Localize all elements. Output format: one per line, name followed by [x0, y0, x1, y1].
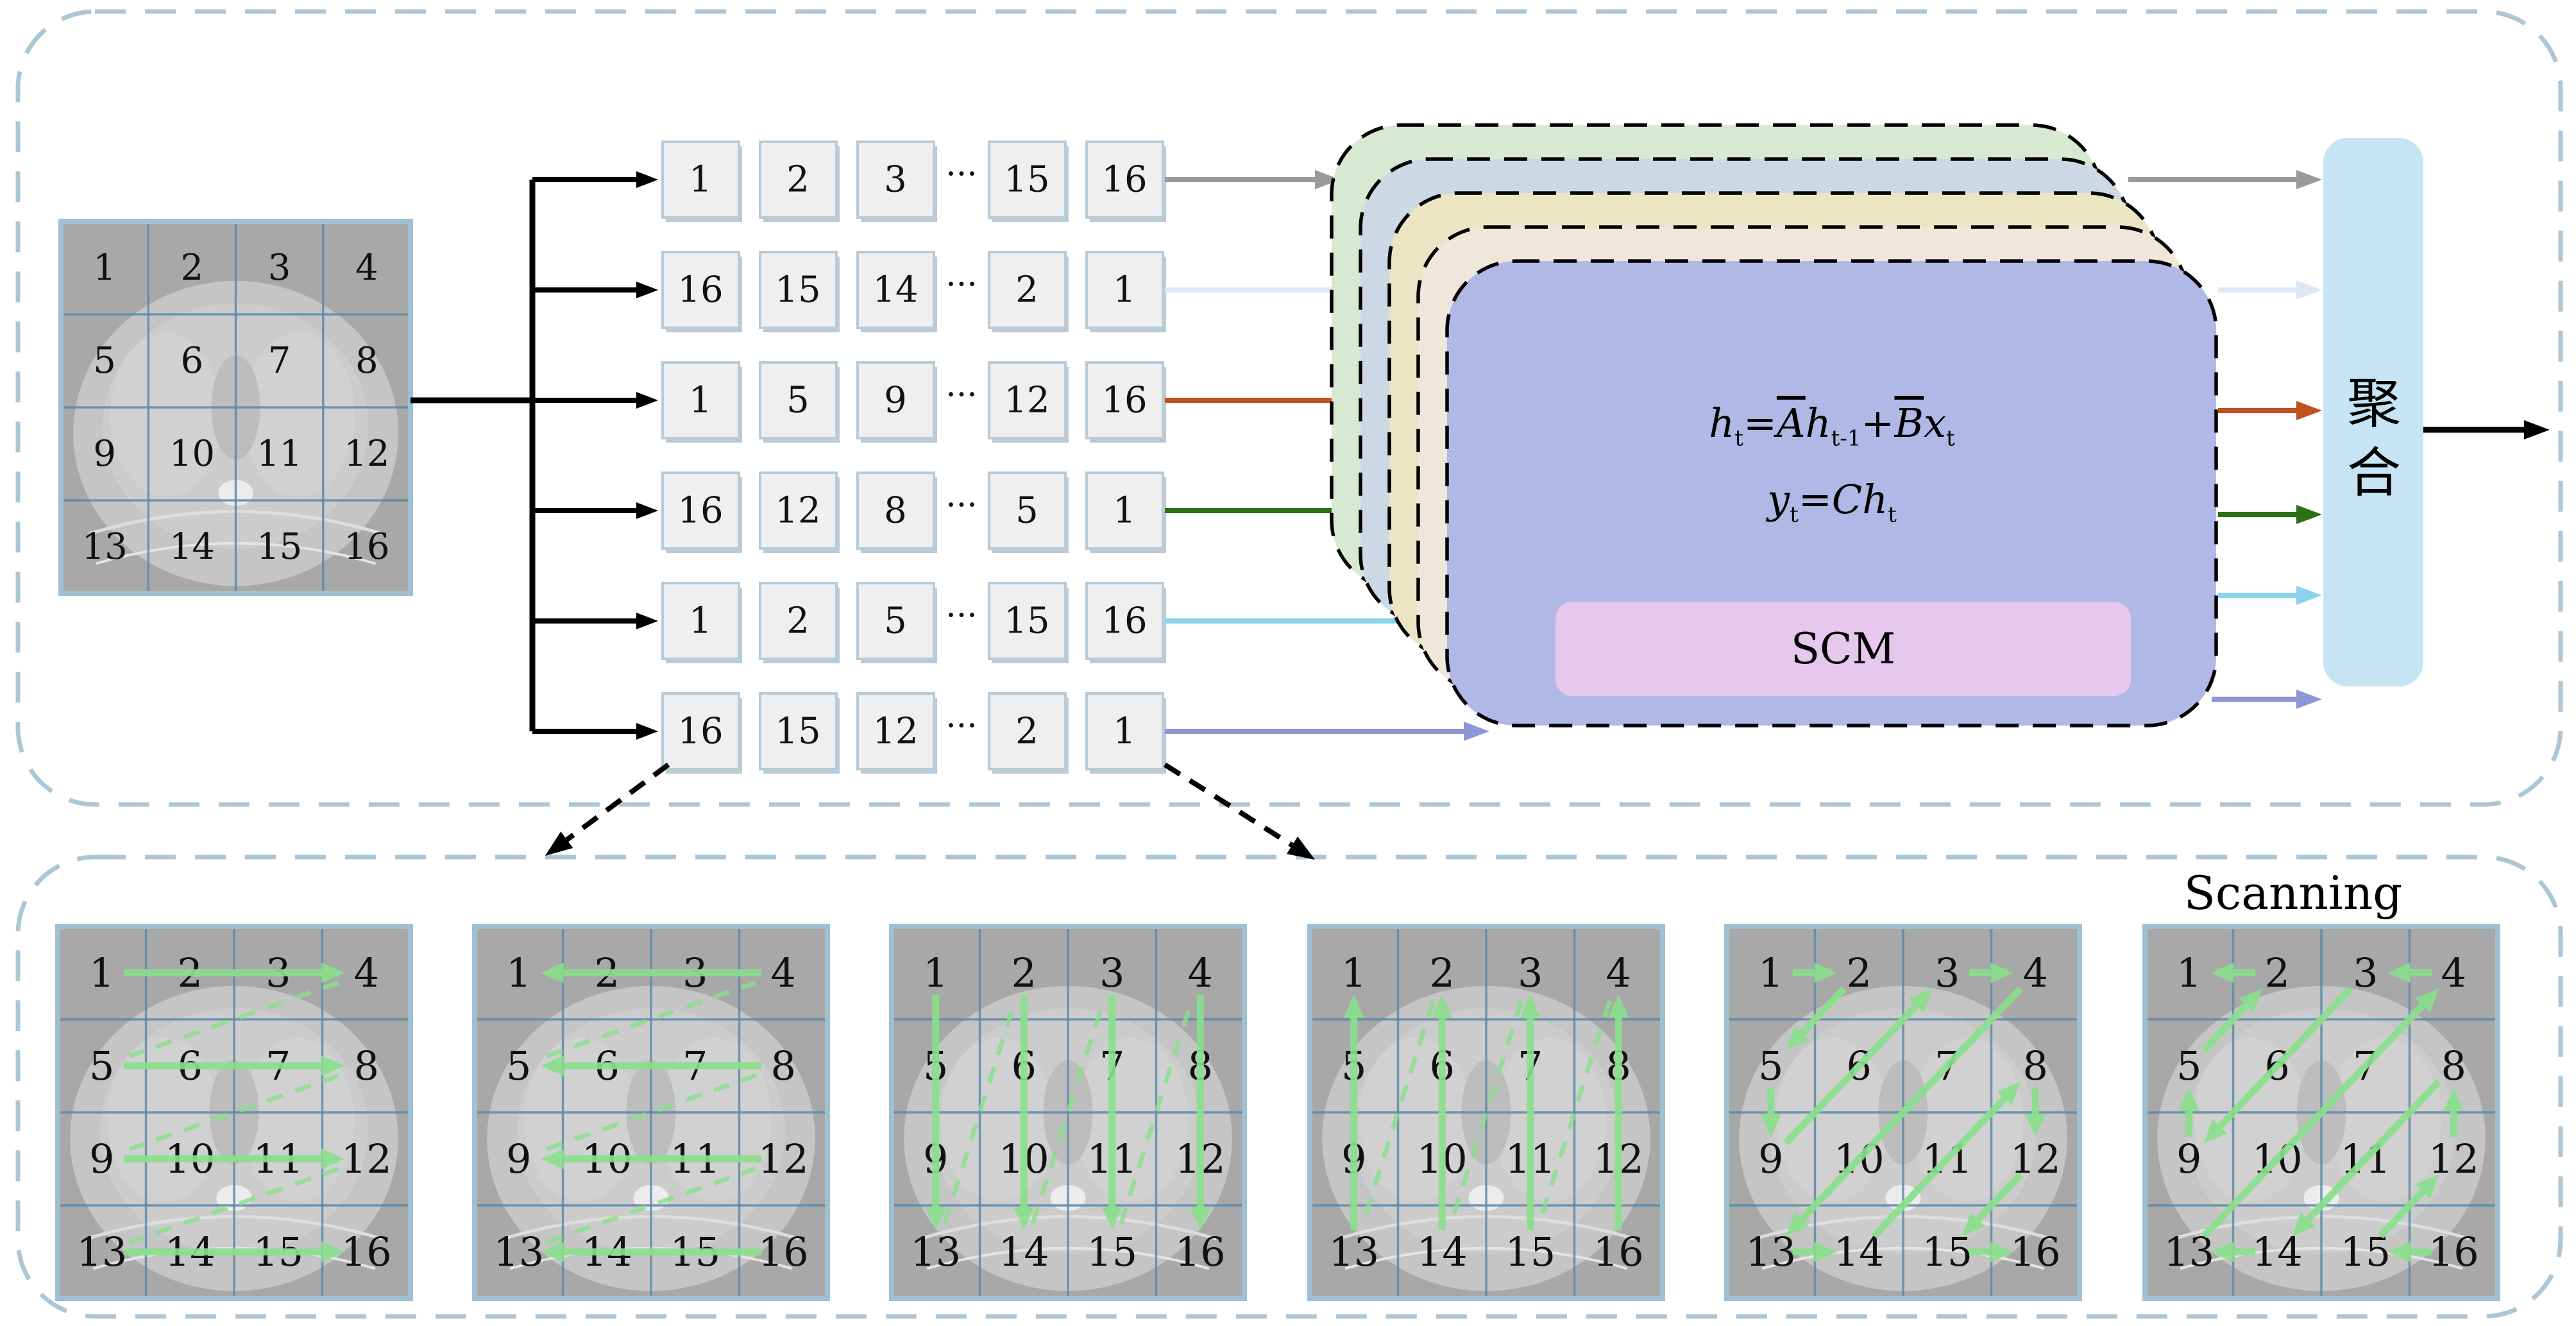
equation-token: C	[1832, 476, 1862, 523]
patch-number: 1	[1758, 949, 1783, 996]
patch-number: 12	[2428, 1135, 2479, 1182]
patch-number: 9	[506, 1135, 531, 1182]
patch-number: 8	[354, 1042, 379, 1089]
patch-number: 13	[76, 1228, 127, 1275]
sequence-cell-number: 15	[1004, 159, 1049, 201]
diagram-canvas: 12345678910111213141516123···1516161514·…	[0, 0, 2576, 1326]
equation-token: +	[1861, 400, 1895, 446]
patch-number: 16	[341, 1228, 392, 1275]
patch-number: 1	[506, 949, 531, 996]
equation-token: h	[1806, 400, 1831, 446]
patch-number: 3	[2353, 949, 2378, 996]
sequence-ellipsis: ···	[945, 266, 978, 304]
patch-number: 9	[93, 433, 116, 475]
patch-number: 16	[2428, 1228, 2479, 1275]
sequence-cell-number: 16	[677, 490, 723, 532]
sequence-cell-number: 16	[1101, 159, 1147, 201]
flow-arrow-out-column-reverse	[2218, 505, 2322, 524]
fanout-arrow-1	[532, 171, 658, 188]
patch-number: 2	[1012, 949, 1037, 996]
fanout-arrow-6	[532, 723, 658, 740]
patch-number: 14	[1417, 1228, 1468, 1275]
patch-number: 3	[1935, 949, 1960, 996]
expand-arrow-left	[545, 765, 668, 856]
equation-token: x	[1924, 400, 1946, 446]
patch-number: 11	[257, 433, 302, 475]
equation-token: =	[1799, 476, 1832, 523]
fanout-arrow-3	[532, 392, 658, 409]
patch-number: 5	[506, 1042, 531, 1089]
patch-number: 9	[1758, 1135, 1783, 1182]
flow-arrow-out-zigzag-forward	[2218, 586, 2322, 605]
sequence-cell-number: 1	[1113, 711, 1136, 752]
aggregation-label: 聚合	[2328, 369, 2419, 507]
patch-number: 10	[169, 433, 215, 475]
equation-token: h	[1709, 400, 1734, 446]
patch-number: 6	[181, 340, 204, 382]
scan-row-forward: 12345678910111213141516	[58, 926, 411, 1298]
equation-token: t	[1734, 425, 1743, 451]
patch-number: 12	[758, 1135, 809, 1182]
patch-number: 1	[89, 949, 114, 996]
patch-number: 4	[1606, 949, 1631, 996]
patch-number: 4	[354, 949, 379, 996]
patch-number: 2	[2265, 949, 2290, 996]
patch-number: 2	[181, 247, 204, 289]
patch-number: 3	[268, 247, 291, 289]
sequence-cell-number: 1	[689, 159, 712, 201]
sequence-cell-number: 15	[1004, 600, 1049, 642]
patch-number: 8	[355, 340, 378, 382]
patch-number: 14	[2252, 1228, 2303, 1275]
sequence-row-row-reverse: 161514···21	[663, 252, 1166, 332]
patch-number: 8	[2023, 1042, 2048, 1089]
sequence-row-zigzag-reverse: 161512···21	[663, 693, 1166, 774]
sequence-cell-number: 1	[1113, 490, 1136, 532]
sequence-cell-number: 15	[775, 269, 820, 311]
equation-token: h	[1862, 476, 1888, 523]
sequence-cell-number: 3	[884, 159, 907, 201]
patch-number: 4	[771, 949, 796, 996]
patch-number: 15	[1505, 1228, 1555, 1275]
sequence-cell-number: 8	[884, 490, 907, 532]
sequence-cell-number: 5	[1015, 490, 1038, 532]
fanout-arrow-4	[532, 502, 658, 519]
sequence-cell-number: 9	[884, 380, 907, 421]
patch-number: 5	[1758, 1042, 1783, 1089]
patch-number: 13	[1328, 1228, 1379, 1275]
patch-number: 9	[89, 1135, 114, 1182]
patch-number: 2	[1847, 949, 1872, 996]
flow-arrow-out-column-forward	[2218, 401, 2322, 420]
sequence-ellipsis: ···	[945, 155, 978, 194]
sequence-ellipsis: ···	[945, 707, 978, 745]
sequence-ellipsis: ···	[945, 376, 978, 414]
ssm-equation-line1: ht=Aht-1+Bxt	[1511, 393, 2153, 469]
patch-number: 13	[910, 1228, 961, 1275]
sequence-cell-number: 5	[786, 380, 809, 421]
expand-arrow-right	[1165, 765, 1315, 860]
sequence-cell-number: 12	[775, 490, 820, 532]
sequence-cell-number: 2	[786, 159, 809, 201]
sequence-cell-number: 2	[1015, 711, 1038, 752]
patch-number: 3	[1518, 949, 1543, 996]
fanout-arrow-2	[532, 282, 658, 298]
scan-column-reverse: 12345678910111213141516	[1310, 926, 1663, 1298]
equation-token: y	[1767, 476, 1790, 523]
equation-token: t	[1946, 425, 1955, 451]
ssm-equation-line2: yt=Cht	[1511, 469, 2153, 545]
patch-number: 4	[2441, 949, 2466, 996]
sequence-cell-number: 12	[1004, 380, 1049, 421]
patch-number: 14	[999, 1228, 1049, 1275]
patch-number: 13	[81, 526, 127, 568]
patch-number: 1	[923, 949, 948, 996]
input-ct-grid: 12345678910111213141516	[61, 221, 411, 593]
equation-token: B	[1894, 400, 1924, 446]
patch-number: 7	[268, 340, 291, 382]
sequence-cell-number: 1	[689, 600, 712, 642]
sequence-row-column-forward: 159···1216	[663, 362, 1166, 443]
sequence-ellipsis: ···	[945, 597, 978, 635]
sequence-cell-number: 16	[677, 269, 723, 311]
scanning-title: Scanning	[2162, 866, 2425, 920]
patch-number: 13	[493, 1228, 544, 1275]
patch-number: 8	[2441, 1042, 2466, 1089]
flow-arrow-in-zigzag-reverse	[1165, 722, 1489, 741]
patch-number: 5	[93, 340, 116, 382]
sequence-cell-number: 16	[677, 711, 723, 752]
equation-token: t	[1790, 502, 1799, 528]
patch-number: 12	[344, 433, 389, 475]
sequence-cell-number: 1	[1113, 269, 1136, 311]
sequence-cell-number: 2	[1015, 269, 1038, 311]
patch-number: 3	[1099, 949, 1124, 996]
patch-number: 15	[1922, 1228, 1972, 1275]
patch-number: 16	[758, 1228, 809, 1275]
patch-number: 5	[89, 1042, 114, 1089]
flow-arrow-out-zigzag-reverse	[2212, 690, 2322, 709]
patch-number: 8	[771, 1042, 796, 1089]
patch-number: 14	[169, 526, 215, 568]
patch-number: 12	[341, 1135, 392, 1182]
flow-arrow-in-row-forward	[1165, 170, 1341, 189]
flow-arrow-out-row-reverse	[2218, 280, 2322, 300]
patch-number: 9	[2176, 1135, 2201, 1182]
sequence-row-zigzag-forward: 125···1516	[663, 583, 1166, 663]
patch-number: 16	[344, 526, 389, 568]
flow-arrow-out-row-forward	[2128, 170, 2322, 189]
patch-number: 4	[2023, 949, 2048, 996]
equation-token: A	[1777, 400, 1806, 446]
patch-number: 4	[1188, 949, 1213, 996]
patch-number: 2	[1430, 949, 1455, 996]
patch-number: 1	[1341, 949, 1366, 996]
scm-block-label: SCM	[1555, 602, 2131, 696]
patch-number: 16	[2010, 1228, 2061, 1275]
ssm-equation: ht=Aht-1+Bxt yt=Cht	[1511, 393, 2153, 546]
scan-row-reverse: 12345678910111213141516	[475, 926, 827, 1298]
sequence-cell-number: 12	[872, 711, 918, 752]
patch-number: 13	[1745, 1228, 1796, 1275]
sequence-row-row-forward: 123···1516	[663, 142, 1166, 222]
patch-number: 15	[1087, 1228, 1137, 1275]
equation-token: t	[1888, 502, 1897, 528]
patch-number: 5	[2176, 1042, 2201, 1089]
fanout-arrow-5	[532, 613, 658, 629]
sequence-cell-number: 5	[884, 600, 907, 642]
patch-number: 1	[93, 247, 116, 289]
sequence-cell-number: 15	[775, 711, 820, 752]
patch-number: 4	[355, 247, 378, 289]
diagram-scene: 12345678910111213141516123···1516161514·…	[0, 0, 2576, 1326]
patch-number: 15	[257, 526, 302, 568]
patch-number: 1	[2176, 949, 2201, 996]
equation-token: =	[1743, 400, 1777, 446]
equation-token: t-1	[1831, 425, 1861, 451]
sequence-cell-number: 16	[1101, 600, 1147, 642]
scan-column-forward: 12345678910111213141516	[892, 926, 1244, 1298]
sequence-cell-number: 16	[1101, 380, 1147, 421]
sequence-cell-number: 2	[786, 600, 809, 642]
sequence-cell-number: 1	[689, 380, 712, 421]
patch-number: 16	[1175, 1228, 1226, 1275]
sequence-cell-number: 14	[872, 269, 918, 311]
sequence-ellipsis: ···	[945, 486, 978, 525]
patch-number: 16	[1593, 1228, 1644, 1275]
output-arrow	[2423, 420, 2550, 439]
sequence-row-column-reverse: 16128···51	[663, 473, 1166, 553]
